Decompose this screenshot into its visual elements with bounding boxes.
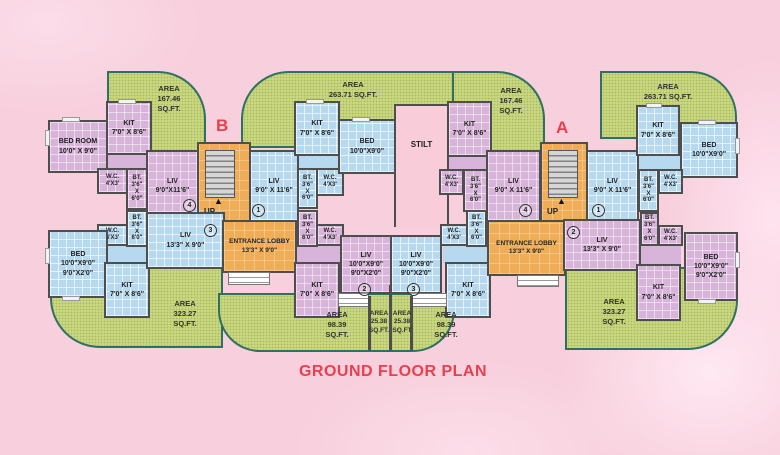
room-bed-flat1-a: BED 10'0"X9'0"	[680, 122, 738, 178]
room-kitchen-flat4-a: KIT 7'0" X 8'6"	[447, 101, 492, 157]
room-bath-flat3-b: BT. 3'6" X 6'0"	[126, 210, 148, 247]
wing-label-b: B	[216, 116, 228, 136]
window-mark	[735, 138, 740, 154]
window-mark	[45, 248, 50, 264]
room-wc-flat4-a: W.C. 4'X3'	[439, 169, 464, 195]
staircase-b: ▲ UP	[197, 142, 251, 223]
flat-number-1-b: 1	[252, 204, 265, 217]
room-bed-flat2-a: BED 10'0"X9'0" 9'0"X2'0"	[684, 232, 738, 301]
room-wc-flat1-a: W.C. 4'X3'	[658, 169, 683, 194]
window-mark	[646, 103, 662, 108]
stair-flight-b	[205, 150, 235, 198]
entry-steps-lobby-a	[517, 275, 559, 287]
up-label-a: UP	[547, 207, 558, 217]
window-mark	[45, 130, 50, 146]
room-kitchen-flat1-b: KIT 7'0" X 8'6"	[294, 101, 340, 156]
window-mark	[735, 252, 740, 268]
room-bath-flat2-a: BT. 3'6" X 6'0"	[640, 212, 659, 246]
flat-number-3-b: 3	[204, 224, 217, 237]
room-bedroom-flat4-b: BED ROOM 10'0" X 9'0"	[48, 120, 108, 173]
flat-number-3-a: 3	[407, 283, 420, 296]
window-mark	[352, 117, 370, 122]
room-bath-flat1-b: BT. 3'6" X 6'0"	[297, 168, 318, 209]
flat-number-2-b: 2	[358, 283, 371, 296]
room-wc-flat2-a: W.C. 4'X3'	[658, 225, 683, 246]
room-wc-flat4-b: W.C. 4'X3'	[97, 168, 128, 194]
area-label-98-left: AREA 98.39 SQ.FT.	[315, 310, 359, 339]
flat-number-2-a: 2	[567, 226, 580, 239]
area-label-98-right: AREA 98.39 SQ.FT.	[423, 310, 469, 339]
room-living-flat3-b: LIV 13'3" X 9'0"	[146, 212, 225, 269]
stair-flight-a	[548, 150, 578, 198]
entry-steps-lobby-b	[228, 272, 270, 285]
window-mark	[698, 299, 716, 304]
area-label-25-right: AREA 25.38 SQ.FT	[383, 310, 421, 335]
area-label-263-a: AREA 263.71 SQ.FT.	[610, 82, 726, 102]
entrance-lobby-a: ENTRANCE LOBBY 13'3" X 9'0"	[487, 220, 566, 276]
room-bath-flat3-a: BT. 3'6" X 6'0"	[466, 210, 487, 247]
page-title: GROUND FLOOR PLAN	[298, 363, 488, 381]
room-wc-flat3-a: W.C. 4'X3'	[440, 224, 468, 246]
flat-number-1-a: 1	[592, 204, 605, 217]
room-bath-flat2-b: BT. 3'6" X 6'0"	[297, 210, 318, 247]
window-mark	[118, 99, 136, 104]
passage-flat2-a	[639, 246, 681, 266]
window-mark	[62, 117, 80, 122]
entrance-lobby-b: ENTRANCE LOBBY 13'3" X 9'0"	[222, 220, 297, 273]
room-bath-flat4-a: BT. 3'6" X 6'0"	[463, 169, 488, 212]
room-living-flat4-a: LIV 9'0" X 11'6"	[486, 150, 541, 222]
room-bath-flat1-a: BT. 3'6" X 6'0"	[638, 169, 659, 212]
room-kitchen-flat2-a: KIT 7'0" X 8'6"	[636, 264, 681, 321]
area-label-263-b: AREA 263.71 SQ.FT.	[293, 80, 413, 100]
staircase-a: ▲ UP	[540, 142, 588, 223]
wing-label-a: A	[556, 118, 568, 138]
flat-number-4-b: 4	[183, 199, 196, 212]
window-mark	[306, 99, 324, 104]
room-bed-flat3-b: BED 10'0"X9'0" 9'0"X2'0"	[48, 230, 108, 298]
room-kitchen-flat1-a: KIT 7'0" X 8'6"	[636, 105, 680, 156]
passage-flat3-a	[443, 244, 488, 264]
room-bath-flat4-b: BT. 3'6" X 6'0"	[126, 168, 148, 210]
stilt-area: STILT	[394, 104, 449, 227]
room-kitchen-flat3-b: KIT 7'0" X 8'6"	[104, 262, 150, 318]
flat-number-4-a: 4	[519, 204, 532, 217]
area-label-323-b: AREA 323.27 SQ.FT.	[157, 299, 213, 328]
floor-plan-canvas: AREA 167.46 SQ.FT. AREA 263.71 SQ.FT. AR…	[0, 0, 780, 455]
room-kitchen-flat4-b: KIT 7'0" X 8'6"	[106, 101, 152, 155]
up-arrow-icon-b: ▲	[214, 197, 223, 206]
passage-flat2-b	[297, 244, 341, 264]
window-mark	[698, 120, 716, 125]
room-bed-flat1-b: BED 10'0"X9'0"	[338, 119, 396, 174]
window-mark	[62, 296, 80, 301]
area-label-323-a: AREA 323.27 SQ.FT.	[585, 297, 643, 326]
up-arrow-icon-a: ▲	[557, 197, 566, 206]
